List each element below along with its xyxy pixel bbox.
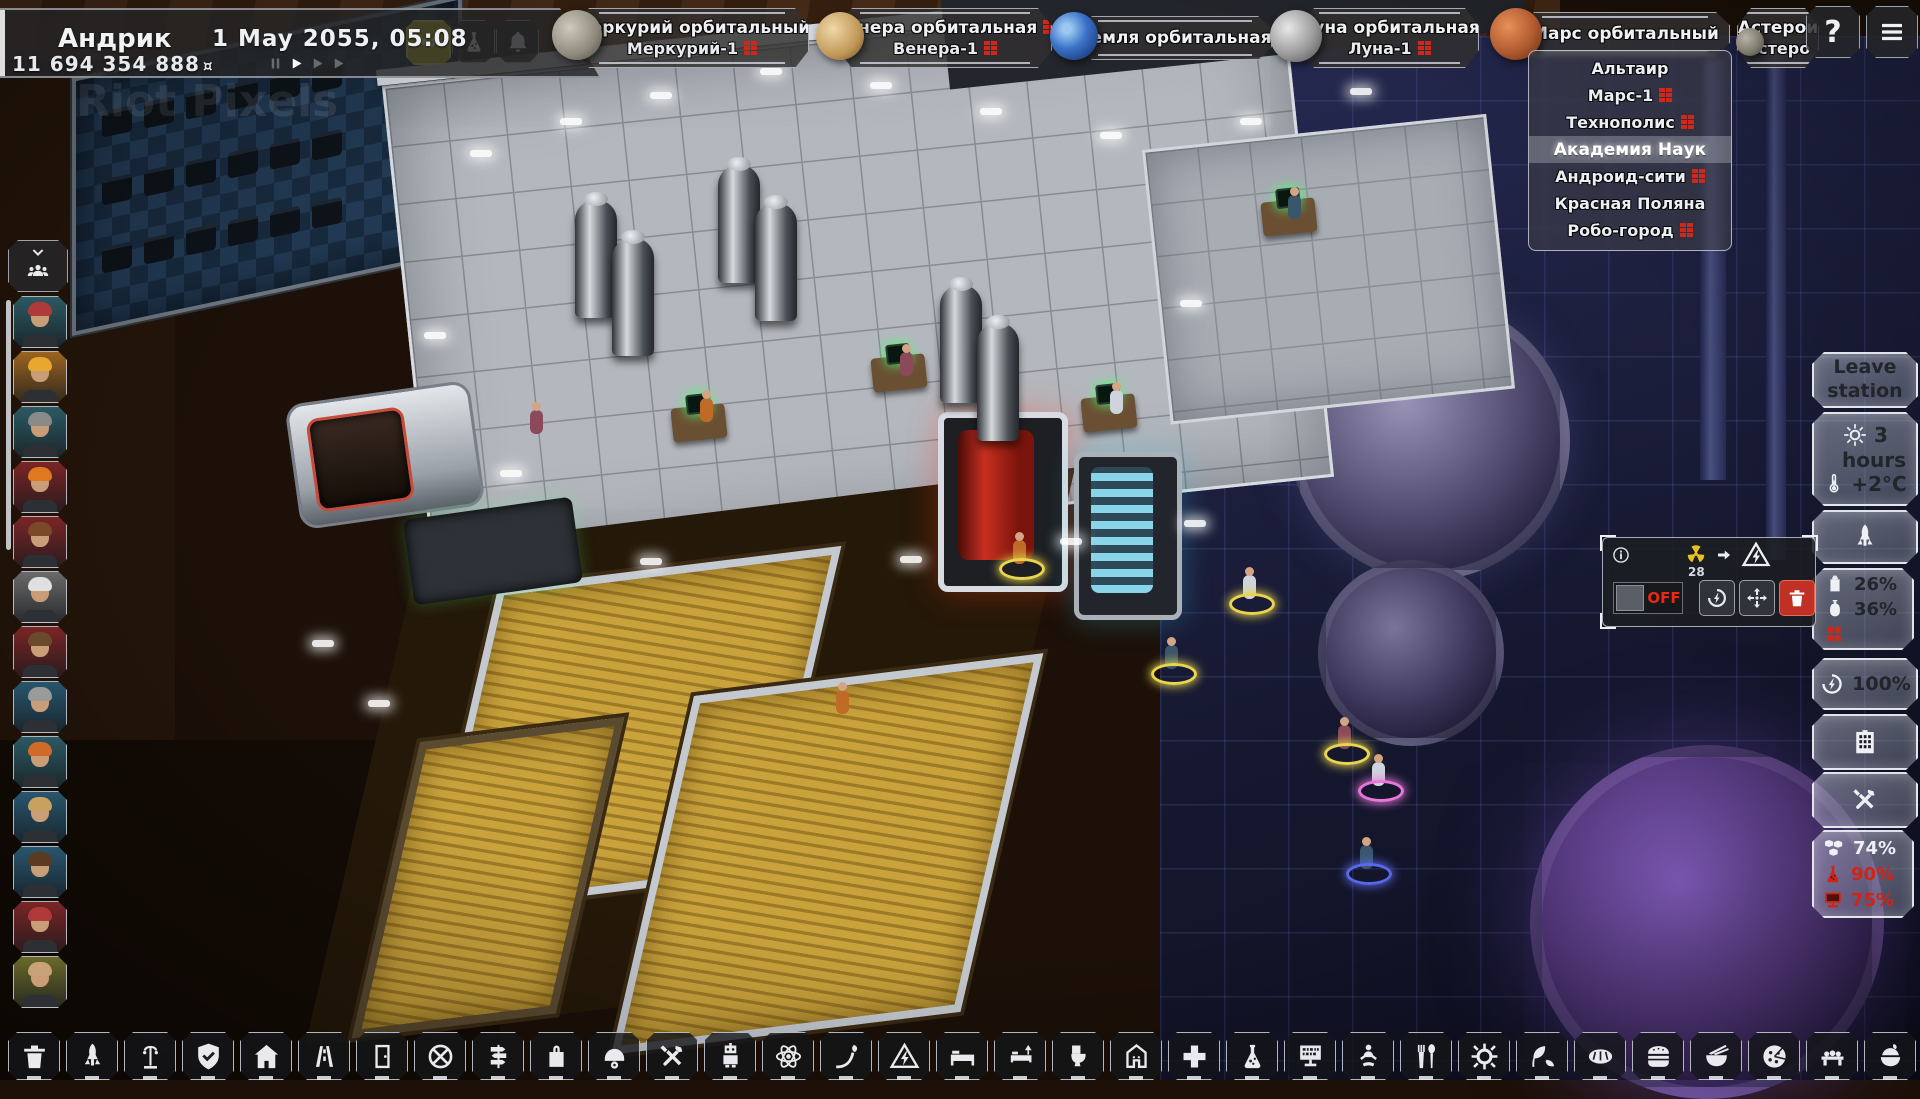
build-toolbar [0, 1028, 1920, 1080]
station-tab-subtitle: Луна-1 [1348, 39, 1430, 58]
road-icon [309, 1041, 340, 1072]
tech-percent: 75% [1851, 890, 1894, 911]
toolbar-item-robot[interactable] [704, 1032, 756, 1080]
station-tab-mercury[interactable]: Меркурий орбитальныйМеркурий-1 [575, 8, 809, 68]
warning-icon [1692, 169, 1705, 184]
watermark: Riot Pixels [76, 80, 338, 124]
display-icon [1295, 1041, 1326, 1072]
tools-icon [1850, 785, 1880, 815]
avatar-hair [28, 962, 52, 976]
temperature-value: +2°C [1851, 472, 1906, 496]
warning-icon [1418, 41, 1431, 56]
mars-dropdown-item-7[interactable]: Робо-город [1529, 217, 1731, 244]
toilet-icon [1063, 1041, 1094, 1072]
leaves-icon [1527, 1041, 1558, 1072]
avatar-hair [28, 852, 52, 866]
dropdown-item-label: Андроид-сити [1555, 167, 1686, 186]
chair [312, 197, 342, 229]
dropdown-item-label: Альтаир [1592, 59, 1669, 78]
avatar-hair [28, 797, 52, 811]
avatar-body [23, 335, 57, 348]
comfort-percent: 74% [1853, 838, 1896, 859]
toolbar-item-toilet[interactable] [1052, 1032, 1104, 1080]
toggle-knob [1616, 585, 1644, 611]
avatar-hair [28, 412, 52, 426]
toolbar-item-road[interactable] [298, 1032, 350, 1080]
selection-ring [1151, 663, 1197, 685]
workstation [670, 403, 727, 442]
gas-bottle-icon [1824, 598, 1846, 620]
hud-edge-accent [0, 10, 5, 76]
selection-ring [1346, 863, 1392, 885]
thermometer-icon [1823, 472, 1845, 496]
colonist-9[interactable] [1110, 390, 1123, 414]
station-tab-subtitle: Венера-1 [893, 39, 997, 58]
toolbar-item-rocket[interactable] [66, 1032, 118, 1080]
hazard-icon [889, 1041, 920, 1072]
burger-icon [1643, 1041, 1674, 1072]
stats-tile[interactable]: 74% 90% 75% [1812, 830, 1914, 918]
mars-dropdown-item-6[interactable]: Красная Поляна [1529, 190, 1731, 217]
crew-portrait-9[interactable] [13, 736, 67, 788]
sprout-icon [831, 1041, 862, 1072]
move-button[interactable] [1739, 580, 1775, 616]
mars-station-dropdown: АльтаирМарс-1ТехнополисАкадемия НаукАндр… [1528, 50, 1732, 251]
station-tab-earth[interactable]: Земля орбитальная [1078, 16, 1272, 60]
avatar-body [23, 775, 57, 788]
colonist-12[interactable] [530, 410, 543, 434]
wall-light [640, 558, 662, 565]
power-cycle-button[interactable] [1699, 580, 1735, 616]
colonist-2[interactable] [1165, 645, 1178, 669]
station-tab-title: Марс орбитальный [1531, 24, 1719, 44]
wall-light [900, 556, 922, 563]
energy-percent: 100% [1852, 673, 1911, 695]
delete-button[interactable] [1779, 580, 1815, 616]
chair [270, 138, 300, 170]
colonist-8[interactable] [900, 352, 913, 376]
toolbar-item-bag[interactable] [530, 1032, 582, 1080]
tools-icon [657, 1041, 688, 1072]
wall-light [1060, 538, 1082, 545]
wall-light [500, 470, 522, 477]
rocket-icon [1850, 522, 1880, 552]
crew-portrait-13[interactable] [13, 956, 67, 1008]
planet-icon-mercury [552, 10, 602, 60]
science-percent: 90% [1851, 864, 1894, 885]
storage-warning-icon [1824, 624, 1844, 644]
planet-icon-asteroid [1736, 28, 1764, 56]
play-speed-1-icon[interactable] [289, 56, 304, 71]
brewing-tank [940, 285, 982, 403]
science-flask-icon [1822, 863, 1844, 885]
station-tab-title: Меркурий орбитальный [575, 18, 809, 38]
travel-duration-value: 3 [1874, 423, 1888, 447]
question-icon: ? [1824, 15, 1841, 50]
avatar-body [23, 390, 57, 403]
toggle-state-label: OFF [1646, 583, 1682, 613]
toolbar-item-bed[interactable] [936, 1032, 988, 1080]
monitor-icon [1822, 889, 1844, 911]
sushi-icon [1817, 1041, 1848, 1072]
bag-icon [541, 1041, 572, 1072]
toolbar-item-leaves[interactable] [1516, 1032, 1568, 1080]
avatar-body [23, 500, 57, 513]
selection-ring [1324, 743, 1370, 765]
avatar-body [23, 445, 57, 458]
info-icon[interactable] [1611, 545, 1631, 565]
bread-icon [1585, 1041, 1616, 1072]
avatar-hair [28, 467, 52, 481]
selection-ring [999, 558, 1045, 580]
mars-dropdown-item-5[interactable]: Андроид-сити [1529, 163, 1731, 190]
colonist-5[interactable] [1372, 762, 1385, 786]
chevron-down-icon [30, 249, 46, 259]
toolbar-item-gear[interactable] [1458, 1032, 1510, 1080]
dropdown-item-label: Технополис [1566, 113, 1675, 132]
avatar-body [23, 665, 57, 678]
dropdown-item-label: Академия Наук [1554, 140, 1706, 160]
panel-corner [1600, 613, 1616, 629]
avatar-hair [28, 742, 52, 756]
flask-icon [1237, 1041, 1268, 1072]
colonist-6[interactable] [1360, 845, 1373, 869]
avatar-hair [28, 302, 52, 316]
selection-ring [1229, 593, 1275, 615]
home-icon [251, 1041, 282, 1072]
streetlamp-icon [135, 1041, 166, 1072]
oxygen-percent: 36% [1854, 599, 1897, 620]
side-rooms-floor [1142, 114, 1515, 425]
toolbar-item-shield[interactable] [182, 1032, 234, 1080]
wall-light [1180, 300, 1202, 307]
hamburger-icon [1877, 17, 1907, 47]
toolbar-item-door[interactable] [356, 1032, 408, 1080]
wall-light [368, 700, 390, 707]
toolbar-item-noodles[interactable] [1690, 1032, 1742, 1080]
play-speed-3-icon[interactable] [331, 56, 346, 71]
tools-tile[interactable] [1812, 772, 1918, 828]
building-tile[interactable] [1812, 714, 1918, 770]
avatar-hair [28, 632, 52, 646]
crew-portrait-4[interactable] [13, 461, 67, 513]
colonist-1[interactable] [1243, 575, 1256, 599]
colonist-7[interactable] [700, 398, 713, 422]
mars-dropdown-item-3[interactable]: Технополис [1529, 109, 1731, 136]
noodles-icon [1701, 1041, 1732, 1072]
crew-portrait-8[interactable] [13, 681, 67, 733]
trash-icon [1786, 587, 1808, 609]
crew-scrollbar[interactable] [6, 300, 11, 550]
resources-tile[interactable]: 26% 36% [1812, 568, 1914, 650]
toolbar-item-bread[interactable] [1574, 1032, 1626, 1080]
brewing-tank [718, 165, 760, 283]
toolbar-item-shower[interactable] [1110, 1032, 1162, 1080]
player-name: Андрик [58, 24, 172, 54]
radiation-icon [1685, 543, 1707, 565]
crew-list-button[interactable] [8, 240, 68, 292]
workstation [870, 353, 927, 392]
main-menu-button[interactable] [1866, 6, 1918, 58]
workstation [1080, 393, 1137, 432]
wall-light [870, 82, 892, 89]
help-button[interactable]: ? [1806, 6, 1860, 58]
shield-icon [193, 1041, 224, 1072]
colonist-10[interactable] [1288, 195, 1301, 219]
mars-dropdown-item-1[interactable]: Альтаир [1529, 55, 1731, 82]
time-controls[interactable] [268, 56, 346, 71]
station-tab-subtitle: Меркурий-1 [627, 39, 757, 58]
colonist-11[interactable] [836, 690, 849, 714]
dropdown-item-label: Марс-1 [1588, 86, 1653, 105]
avatar-hair [28, 522, 52, 536]
medical-icon [1179, 1041, 1210, 1072]
building-icon [1850, 727, 1880, 757]
toolbar-item-rice[interactable] [1864, 1032, 1916, 1080]
energy-cycle-icon [1819, 671, 1845, 697]
selection-ring [1358, 780, 1404, 802]
toolbar-item-airlock[interactable] [414, 1032, 466, 1080]
panel-corner [1802, 535, 1818, 551]
avatar-body [23, 720, 57, 733]
station-tab-title: Земля орбитальная [1078, 28, 1271, 48]
airlock-icon [425, 1041, 456, 1072]
cutlery-icon [1411, 1041, 1442, 1072]
chair [144, 232, 174, 264]
avatar-body [23, 940, 57, 953]
electric-hazard-icon [1741, 540, 1771, 570]
shower-icon [1121, 1041, 1152, 1072]
chair [228, 146, 258, 178]
wall-light [560, 118, 582, 125]
crew-portrait-1[interactable] [13, 296, 67, 348]
generator-blue [1074, 452, 1182, 620]
toolbar-item-medical[interactable] [1168, 1032, 1220, 1080]
dropdown-item-label: Робо-город [1567, 221, 1673, 240]
money-value: 11 694 354 888¤ [12, 52, 214, 76]
toolbar-item-atom[interactable] [762, 1032, 814, 1080]
sun-icon [1842, 422, 1868, 448]
wall-light [312, 640, 334, 647]
station-tab-venus[interactable]: Венера орбитальнаяВенера-1 [838, 8, 1052, 68]
wall-light [470, 150, 492, 157]
toolbar-item-tools[interactable] [646, 1032, 698, 1080]
chair [270, 206, 300, 238]
brewing-tank [575, 200, 617, 318]
move-icon [1745, 586, 1769, 610]
wall-light [1240, 118, 1262, 125]
avatar-body [23, 885, 57, 898]
avatar-body [23, 995, 57, 1008]
travel-duration-unit: hours [1842, 448, 1906, 472]
toolbar-item-sprout[interactable] [820, 1032, 872, 1080]
warning-icon [744, 41, 757, 56]
game-date: 1 May 2055, 05:08 [212, 26, 468, 52]
avatar-hair [28, 357, 52, 371]
player-hud-panel: Андрик 11 694 354 888¤ 1 May 2055, 05:08 [0, 8, 600, 78]
signpost-icon [483, 1041, 514, 1072]
wall-light [980, 108, 1002, 115]
toolbar-item-sushi[interactable] [1806, 1032, 1858, 1080]
crew-portrait-11[interactable] [13, 846, 67, 898]
rice-icon [1875, 1041, 1906, 1072]
chair-row [102, 197, 342, 274]
play-speed-2-icon[interactable] [310, 56, 325, 71]
energy-tile[interactable]: 100% [1812, 658, 1918, 710]
toolbar-item-signpost[interactable] [472, 1032, 524, 1080]
meditation-icon [1353, 1041, 1384, 1072]
avatar-body [23, 610, 57, 623]
brewing-tank [977, 323, 1019, 441]
leave-station-button[interactable]: Leave station [1812, 352, 1918, 408]
pause-icon[interactable] [268, 56, 283, 71]
arrow-right-icon [1713, 546, 1735, 564]
station-tab-moon[interactable]: Луна орбитальнаяЛуна-1 [1300, 8, 1479, 68]
crew-portrait-7[interactable] [13, 626, 67, 678]
wall-light [1350, 88, 1372, 95]
trash-icon [19, 1041, 50, 1072]
chair [102, 173, 132, 205]
wall-light [650, 92, 672, 99]
bed-icon [947, 1041, 978, 1072]
avatar-body [23, 830, 57, 843]
planet-icon-venus [816, 12, 864, 60]
robot-icon [715, 1041, 746, 1072]
rocket-tile[interactable] [1812, 510, 1918, 564]
avatar-hair [28, 907, 52, 921]
warning-icon [1659, 88, 1672, 103]
helmet-icon [599, 1041, 630, 1072]
crew-portrait-2[interactable] [13, 351, 67, 403]
crew-portrait-10[interactable] [13, 791, 67, 843]
toolbar-item-home[interactable] [240, 1032, 292, 1080]
fuel-percent: 26% [1854, 574, 1897, 595]
chair [186, 223, 216, 255]
gear-icon [1469, 1041, 1500, 1072]
chair [102, 241, 132, 273]
chair-row [102, 129, 342, 206]
atom-icon [773, 1041, 804, 1072]
toolbar-item-meditation[interactable] [1342, 1032, 1394, 1080]
mars-dropdown-item-4[interactable]: Академия Наук [1529, 136, 1731, 163]
toolbar-item-display[interactable] [1284, 1032, 1336, 1080]
wall-light [1100, 132, 1122, 139]
avatar-hair [28, 577, 52, 591]
power-toggle[interactable]: OFF [1613, 582, 1683, 614]
brewing-tank [612, 238, 654, 356]
pipe [1766, 40, 1786, 560]
door-icon [367, 1041, 398, 1072]
toolbar-item-flask[interactable] [1226, 1032, 1278, 1080]
planet-icon-moon [1270, 10, 1322, 62]
weather-tile[interactable]: 3 hours +2°C [1812, 412, 1918, 506]
machine-control-panel: 28 OFF [1602, 537, 1816, 627]
bedlamp-icon [1005, 1041, 1036, 1072]
crew-portrait-3[interactable] [13, 406, 67, 458]
toolbar-item-cutlery[interactable] [1400, 1032, 1452, 1080]
toolbar-item-pizza[interactable] [1748, 1032, 1800, 1080]
power-cycle-icon [1705, 586, 1729, 610]
warning-icon [1681, 115, 1694, 130]
cubes-icon [1822, 836, 1846, 860]
toolbar-item-burger[interactable] [1632, 1032, 1684, 1080]
wall-light [1184, 520, 1206, 527]
avatar-body [23, 555, 57, 568]
crew-portrait-5[interactable] [13, 516, 67, 568]
chair [144, 164, 174, 196]
avatar-hair [28, 687, 52, 701]
chair [228, 214, 258, 246]
chair [312, 129, 342, 161]
toolbar-item-helmet[interactable] [588, 1032, 640, 1080]
leave-station-label: Leave station [1814, 356, 1916, 404]
rocket-icon [77, 1041, 108, 1072]
crew-portrait-12[interactable] [13, 901, 67, 953]
station-tab-title: Венера орбитальная [838, 18, 1052, 38]
dropdown-item-label: Красная Поляна [1555, 194, 1706, 213]
wall-light [760, 68, 782, 75]
warning-icon [1680, 223, 1693, 238]
toolbar-item-streetlamp[interactable] [124, 1032, 176, 1080]
colonist-4[interactable] [1338, 725, 1351, 749]
toolbar-item-hazard[interactable] [878, 1032, 930, 1080]
toolbar-item-trash[interactable] [8, 1032, 60, 1080]
toolbar-item-bedlamp[interactable] [994, 1032, 1046, 1080]
crew-portrait-6[interactable] [13, 571, 67, 623]
planet-icon-earth [1050, 12, 1098, 60]
crew-group-icon [21, 260, 55, 284]
mars-dropdown-item-2[interactable]: Марс-1 [1529, 82, 1731, 109]
colonist-3[interactable] [1013, 540, 1026, 564]
radiation-count: 28 [1688, 565, 1705, 579]
chair [186, 155, 216, 187]
fuel-canister-icon [1824, 573, 1846, 595]
pizza-icon [1759, 1041, 1790, 1072]
warning-icon [984, 41, 997, 56]
brewing-tank [755, 203, 797, 321]
wall-light [424, 332, 446, 339]
centrifuge-machine [284, 380, 486, 531]
station-tab-title: Луна орбитальная [1300, 18, 1479, 38]
currency-icon: ¤ [203, 57, 214, 75]
